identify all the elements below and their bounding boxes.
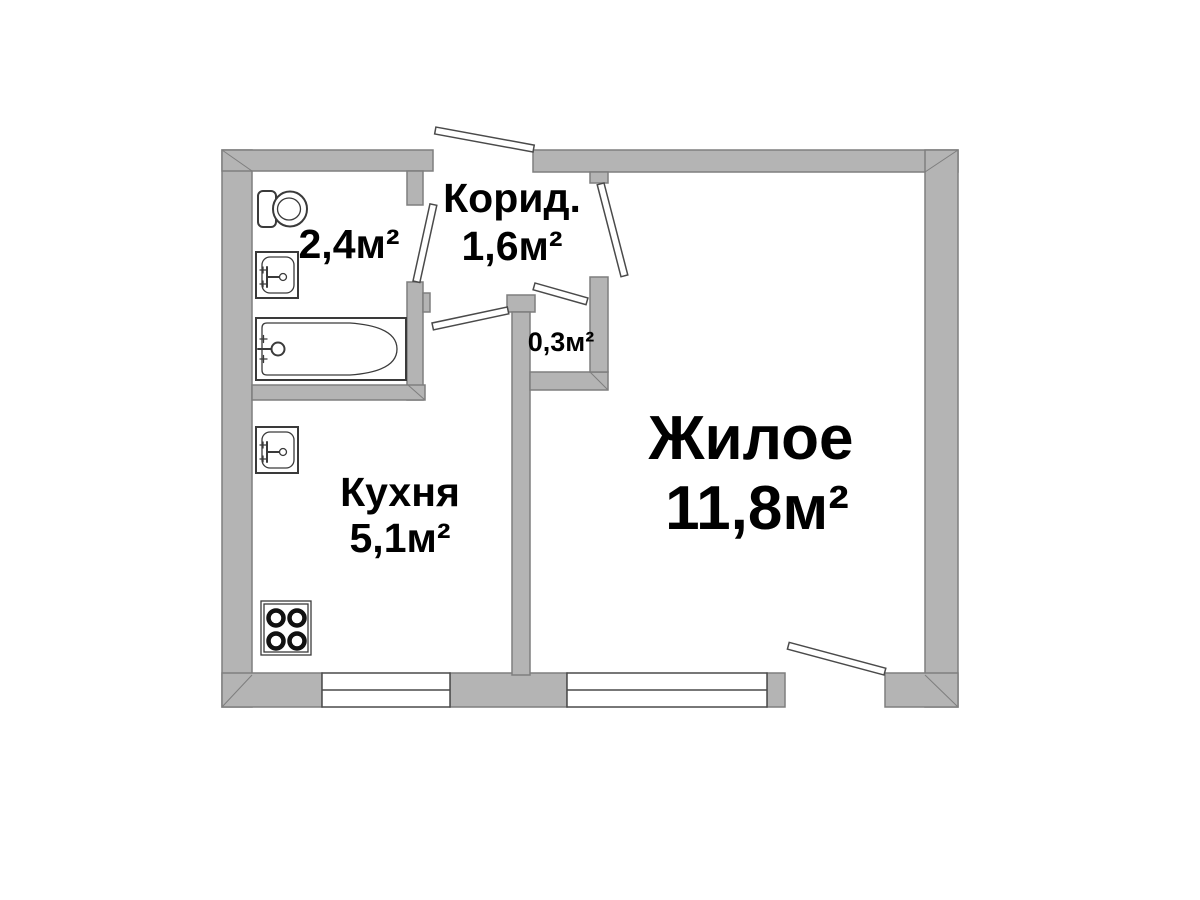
wall-living-door-stub <box>590 172 608 183</box>
kitchen-area-label: 5,1м² <box>350 515 451 561</box>
entrance-door-leaf <box>435 127 535 152</box>
kitchen-window <box>322 673 450 707</box>
wall-kitchen-living-divider <box>512 312 530 675</box>
wall-bottom-middle-pier <box>450 673 567 707</box>
sink-icon <box>256 252 298 298</box>
wall-exterior-right <box>925 150 958 707</box>
closet-area-label: 0,3м² <box>528 327 595 357</box>
wall-exterior-top-left <box>222 150 433 171</box>
corridor-name-label: Корид. <box>443 175 581 221</box>
floor-plan: 2,4м² Корид. 1,6м² 0,3м² Кухня 5,1м² Жил… <box>0 0 1200 900</box>
kitchen-name-label: Кухня <box>340 469 460 515</box>
wall-bottom-right-pier <box>885 673 958 707</box>
wall-bathroom-right-upper <box>407 171 423 205</box>
wall-closet-bottom <box>530 372 608 390</box>
wall-doorstop-bump <box>423 293 430 312</box>
living-room-door-leaf <box>597 183 628 277</box>
wall-closet-right <box>590 277 608 372</box>
wall-exterior-top-right <box>533 150 958 172</box>
kitchen-sink-icon <box>256 427 298 473</box>
stove-icon <box>261 601 311 655</box>
living-room-window <box>567 673 767 707</box>
wall-exterior-left <box>222 150 252 707</box>
bathroom-area-label: 2,4м² <box>299 221 400 267</box>
closet-door-leaf <box>533 283 588 305</box>
balcony-door-leaf <box>787 642 885 675</box>
wall-divider-block <box>507 295 535 312</box>
floor-plan-svg: 2,4м² Корид. 1,6м² 0,3м² Кухня 5,1м² Жил… <box>0 0 1200 900</box>
wall-bottom-small-pier <box>767 673 785 707</box>
bathroom-door-leaf <box>413 204 437 283</box>
kitchen-door-leaf <box>432 307 509 330</box>
living-name-label: Жилое <box>647 404 853 473</box>
wall-bottom-left-pier <box>222 673 322 707</box>
wall-bathroom-bottom <box>252 385 425 400</box>
bathtub-icon <box>256 318 406 380</box>
living-area-label: 11,8м² <box>665 474 849 543</box>
wall-bathroom-right-lower <box>407 282 423 400</box>
corridor-area-label: 1,6м² <box>462 223 563 269</box>
